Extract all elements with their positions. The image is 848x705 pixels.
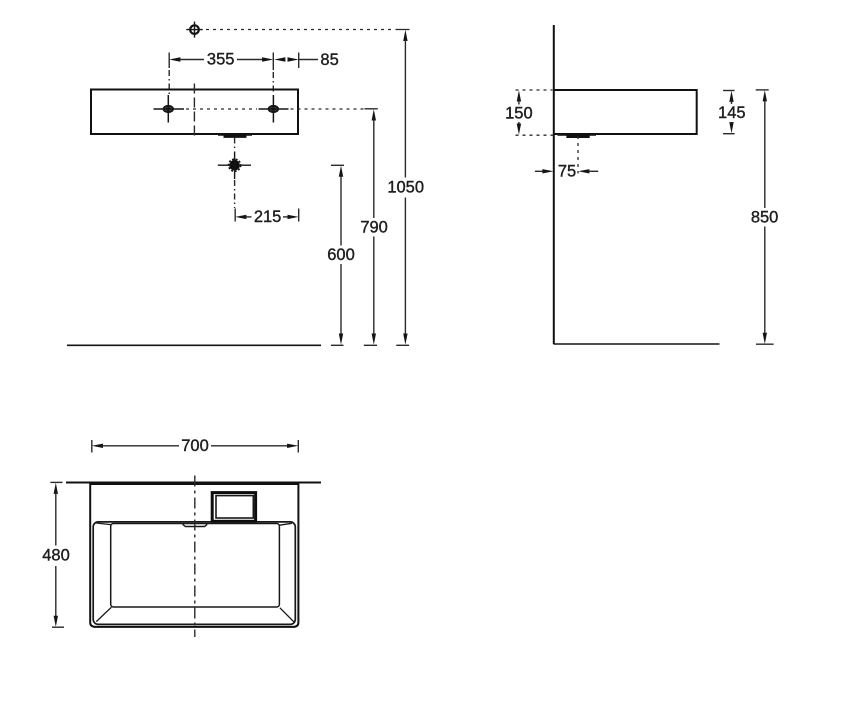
svg-text:85: 85 bbox=[320, 51, 338, 69]
svg-text:215: 215 bbox=[254, 208, 282, 226]
svg-text:600: 600 bbox=[327, 246, 355, 264]
svg-text:145: 145 bbox=[718, 104, 746, 122]
svg-text:75: 75 bbox=[558, 163, 576, 181]
svg-text:850: 850 bbox=[751, 208, 779, 226]
svg-text:790: 790 bbox=[360, 218, 388, 236]
svg-text:700: 700 bbox=[181, 437, 209, 455]
svg-text:355: 355 bbox=[207, 51, 235, 69]
svg-text:150: 150 bbox=[505, 105, 533, 123]
svg-text:480: 480 bbox=[42, 547, 70, 565]
svg-text:1050: 1050 bbox=[387, 179, 424, 197]
